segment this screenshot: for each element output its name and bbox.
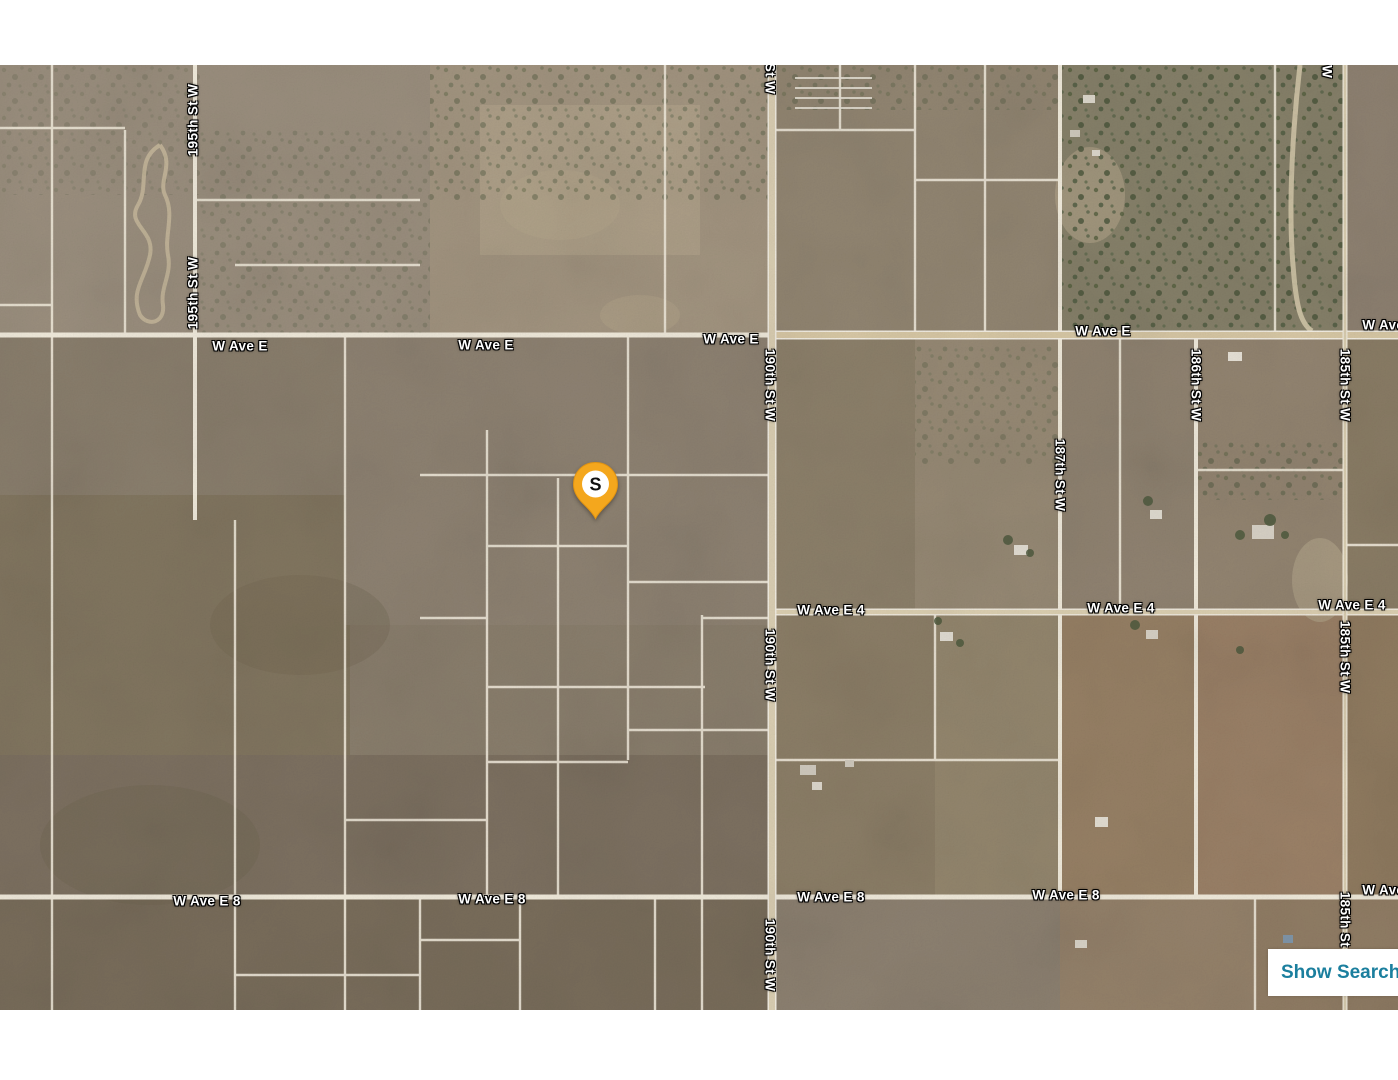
road-label-w-ave-e: W Ave E xyxy=(1075,324,1130,339)
road-label-187th-st-w: 187th St W xyxy=(1053,439,1068,512)
road-label-w-ave-e-4: W Ave E 4 xyxy=(1087,601,1154,616)
road-label-190th-st-w: 190th St W xyxy=(763,919,778,992)
road-label-185th-st-w: 185th St W xyxy=(1338,621,1353,694)
road-label-w-ave-e: W Ave E xyxy=(212,339,267,354)
road-label-w-ave-e-8: W Ave E 8 xyxy=(173,894,240,909)
road-label-w-ave-e-8: W Ave E 8 xyxy=(1362,883,1398,898)
road-label-w-ave-e-8: W Ave E 8 xyxy=(1032,888,1099,903)
road-label-w-ave-e: W Ave E xyxy=(1362,318,1398,333)
road-label-190th-st-w: 190th St W xyxy=(763,629,778,702)
show-search-button[interactable]: Show Search xyxy=(1268,949,1398,996)
road-label-w-ave-e: W Ave E xyxy=(458,338,513,353)
road-label-w-ave-e-4: W Ave E 4 xyxy=(797,603,864,618)
road-label-w-ave-e-8: W Ave E 8 xyxy=(797,890,864,905)
satellite-map[interactable]: W Ave E W Ave E W Ave E W Ave E W Ave E … xyxy=(0,65,1398,1010)
road-label-w-ave-e-4: W Ave E 4 xyxy=(1318,598,1385,613)
road-label-195th-st-w: 195th St W xyxy=(186,257,201,330)
road-label-190th-st-w: 190th St W xyxy=(763,349,778,422)
map-marker-pin[interactable]: S xyxy=(571,461,620,520)
marker-letter: S xyxy=(589,475,601,495)
satellite-imagery xyxy=(0,65,1398,1010)
road-label-w-ave-e-8: W Ave E 8 xyxy=(458,892,525,907)
road-label-186th-st-w: 186th St W xyxy=(1189,349,1204,422)
road-label-w-ave-e: W Ave E xyxy=(703,332,758,347)
page: W Ave E W Ave E W Ave E W Ave E W Ave E … xyxy=(0,0,1398,1080)
road-label-185th-st-w: 185th St W xyxy=(1338,349,1353,422)
road-label-190th-st-w: 190th St W xyxy=(763,65,778,94)
road-label-185th-st-w: 185th St W xyxy=(1320,65,1335,78)
road-label-195th-st-w: 195th St W xyxy=(186,84,201,157)
